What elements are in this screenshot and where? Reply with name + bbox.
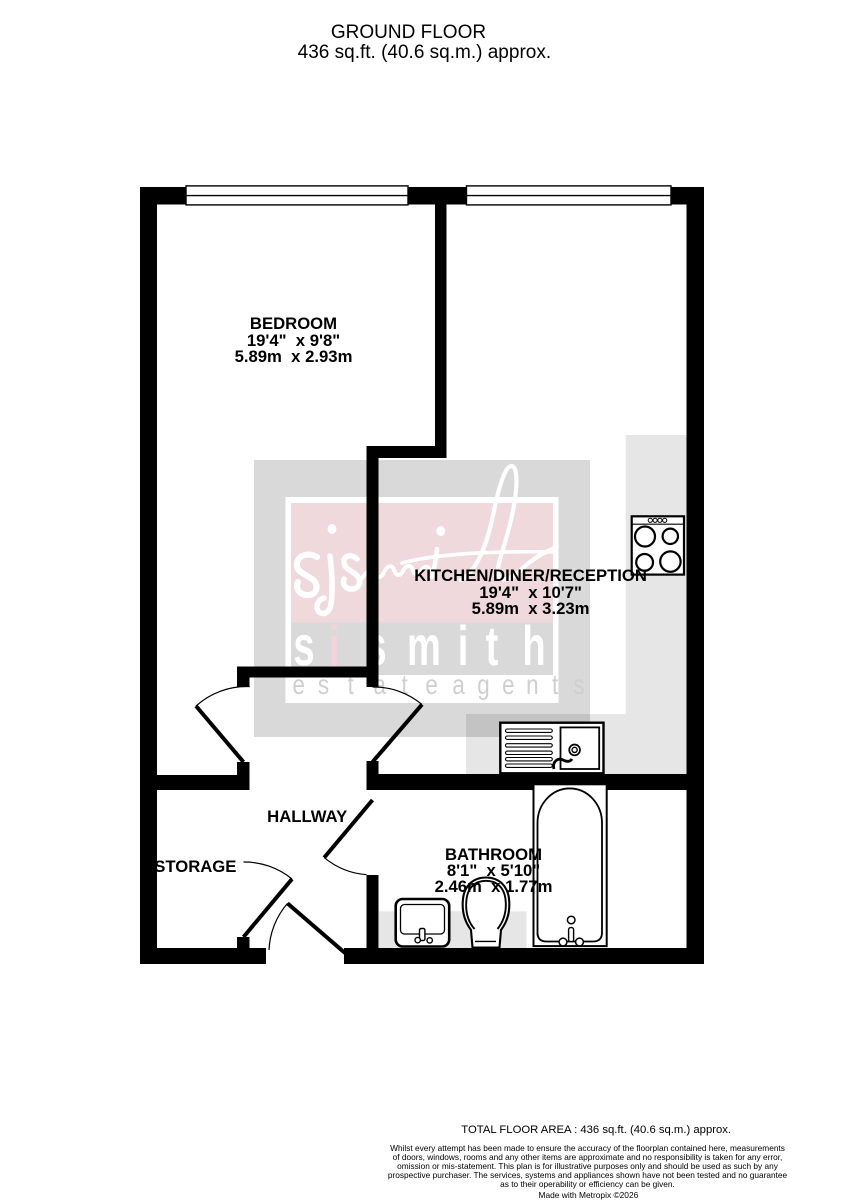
svg-text:n: n bbox=[526, 670, 538, 701]
svg-text:e: e bbox=[502, 670, 514, 701]
svg-text:s: s bbox=[573, 670, 584, 701]
svg-text:a: a bbox=[452, 670, 465, 701]
svg-text:t: t bbox=[402, 670, 408, 701]
svg-text:e: e bbox=[425, 670, 437, 701]
svg-text:g: g bbox=[477, 670, 489, 701]
svg-text:t: t bbox=[552, 670, 558, 701]
